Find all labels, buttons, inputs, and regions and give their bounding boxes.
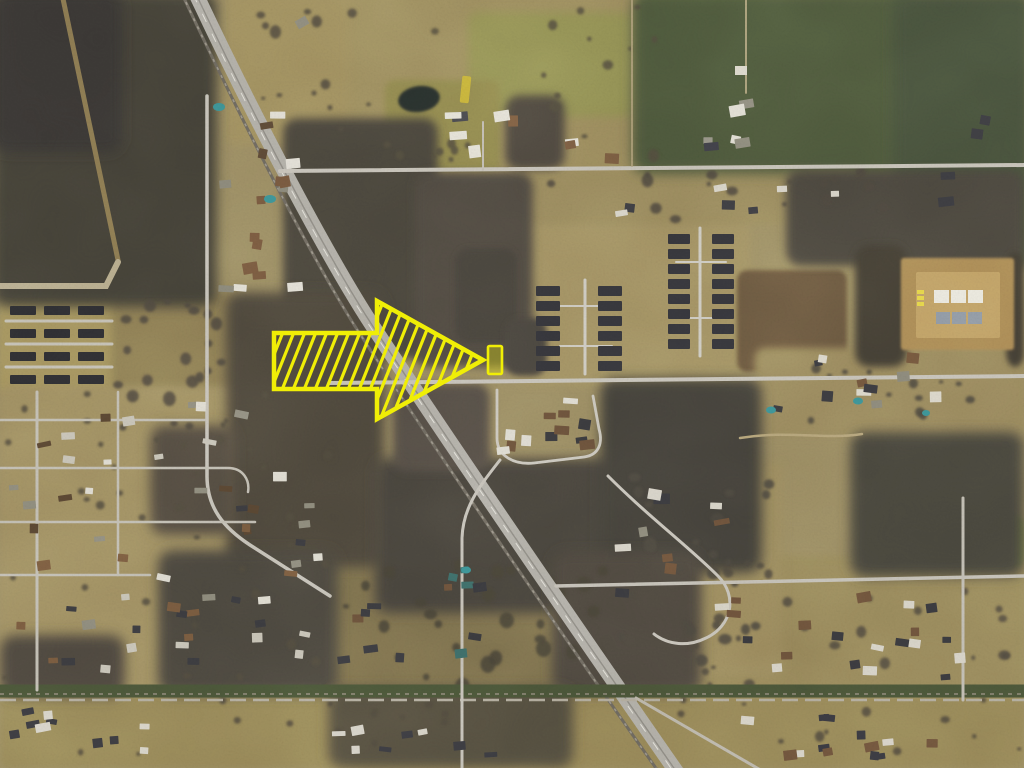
aerial-imagery	[0, 0, 1024, 768]
highlighted-parcel-marker	[488, 346, 502, 374]
satellite-screenshot	[0, 0, 1024, 768]
photo-texture	[0, 0, 1024, 768]
photo-grain-noise	[0, 0, 1024, 768]
